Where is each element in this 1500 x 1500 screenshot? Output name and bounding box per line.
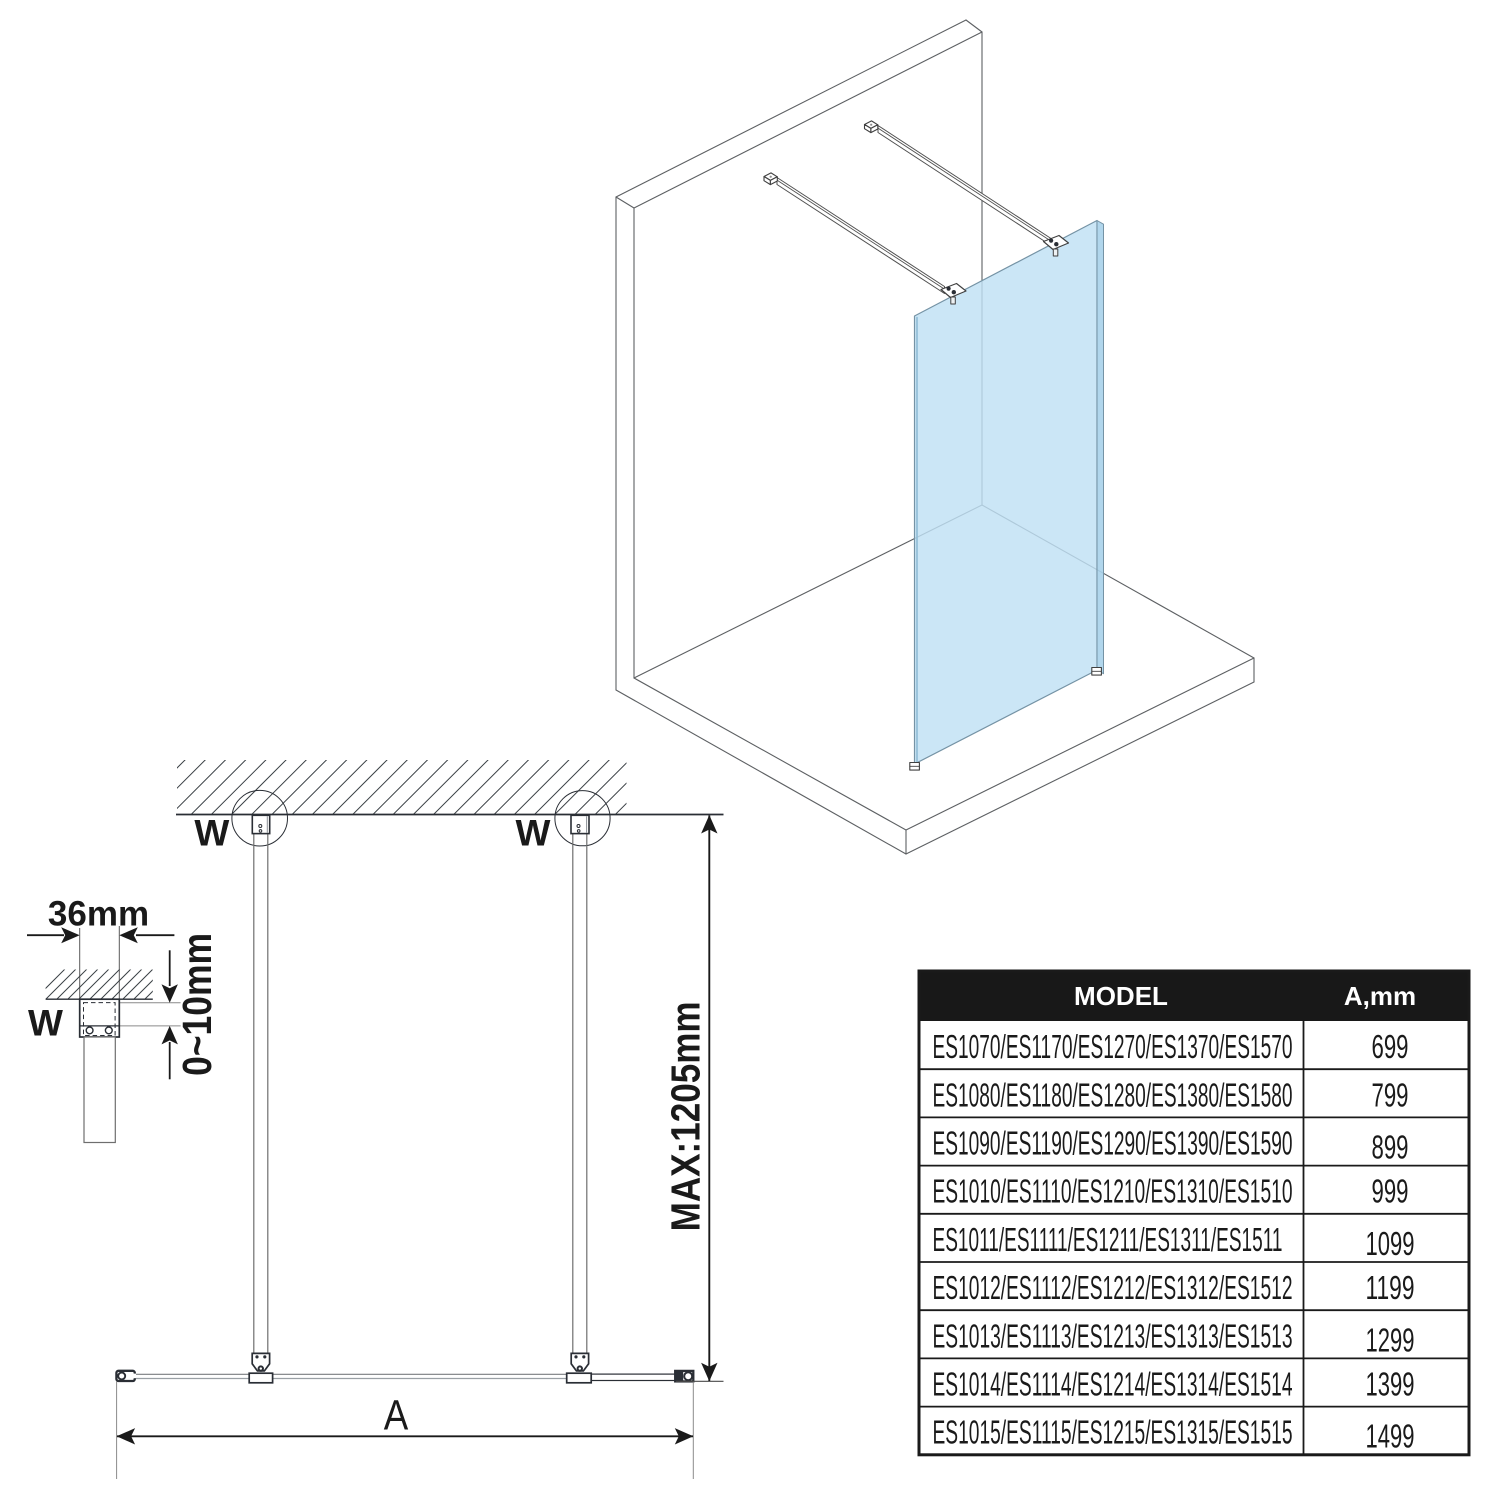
svg-text:ES1015/ES1115/ES1215/ES1315/ES: ES1015/ES1115/ES1215/ES1315/ES1515 bbox=[933, 1414, 1293, 1451]
svg-text:MODEL: MODEL bbox=[1074, 981, 1168, 1011]
svg-text:W: W bbox=[194, 813, 229, 854]
svg-text:1299: 1299 bbox=[1366, 1321, 1415, 1358]
svg-text:799: 799 bbox=[1372, 1076, 1409, 1113]
svg-text:W: W bbox=[516, 813, 551, 854]
svg-text:A: A bbox=[384, 1392, 409, 1440]
svg-text:36mm: 36mm bbox=[48, 895, 149, 934]
svg-text:ES1012/ES1112/ES1212/ES1312/ES: ES1012/ES1112/ES1212/ES1312/ES1512 bbox=[933, 1269, 1293, 1306]
svg-text:A,mm: A,mm bbox=[1344, 981, 1416, 1011]
svg-text:ES1080/ES1180/ES1280/ES1380/ES: ES1080/ES1180/ES1280/ES1380/ES1580 bbox=[933, 1076, 1293, 1113]
svg-text:ES1090/ES1190/ES1290/ES1390/ES: ES1090/ES1190/ES1290/ES1390/ES1590 bbox=[933, 1125, 1293, 1162]
svg-text:699: 699 bbox=[1372, 1028, 1409, 1065]
svg-text:ES1010/ES1110/ES1210/ES1310/ES: ES1010/ES1110/ES1210/ES1310/ES1510 bbox=[933, 1173, 1293, 1210]
svg-text:1099: 1099 bbox=[1366, 1225, 1415, 1262]
svg-text:W: W bbox=[28, 1003, 63, 1044]
svg-text:ES1014/ES1114/ES1214/ES1314/ES: ES1014/ES1114/ES1214/ES1314/ES1514 bbox=[933, 1366, 1293, 1403]
svg-text:ES1070/ES1170/ES1270/ES1370/ES: ES1070/ES1170/ES1270/ES1370/ES1570 bbox=[933, 1028, 1293, 1065]
svg-text:MAX:1205mm: MAX:1205mm bbox=[663, 1001, 709, 1231]
svg-text:ES1011/ES1111/ES1211/ES1311/ES: ES1011/ES1111/ES1211/ES1311/ES1511 bbox=[933, 1221, 1283, 1258]
svg-text:1399: 1399 bbox=[1366, 1366, 1415, 1403]
svg-text:0~10mm: 0~10mm bbox=[174, 933, 220, 1076]
svg-text:1499: 1499 bbox=[1366, 1418, 1415, 1455]
svg-text:899: 899 bbox=[1372, 1129, 1409, 1166]
svg-text:1199: 1199 bbox=[1366, 1269, 1415, 1306]
svg-text:999: 999 bbox=[1372, 1173, 1409, 1210]
svg-text:ES1013/ES1113/ES1213/ES1313/ES: ES1013/ES1113/ES1213/ES1313/ES1513 bbox=[933, 1317, 1293, 1354]
